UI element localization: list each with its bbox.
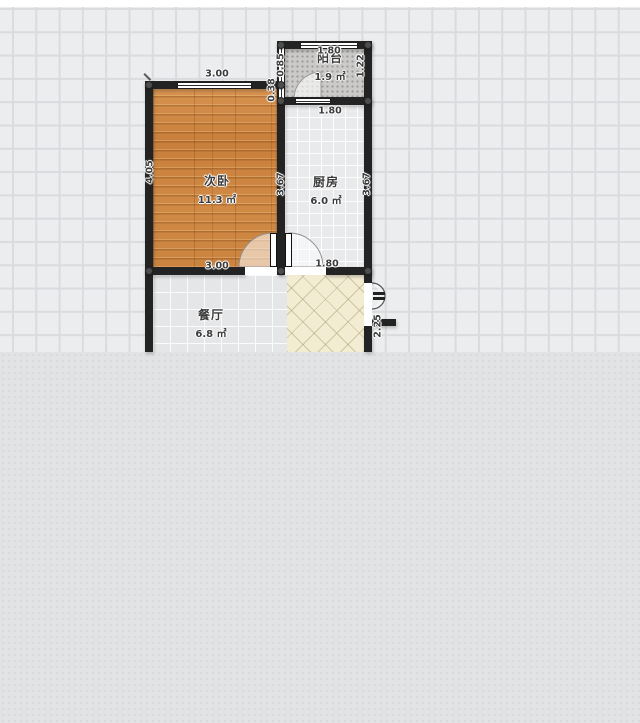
bedroom-door-leaf[interactable] bbox=[270, 233, 277, 267]
vertex-dot[interactable] bbox=[145, 81, 153, 89]
vertex-dot[interactable] bbox=[277, 81, 285, 89]
vertex-dot[interactable] bbox=[364, 97, 372, 105]
vertex-dot[interactable] bbox=[364, 267, 372, 275]
room-label-kitchen: 厨房 6.0 ㎡ bbox=[310, 173, 341, 207]
room-name: 厨房 bbox=[310, 173, 341, 190]
dim-balcony-right: 1.22 bbox=[356, 54, 367, 77]
room-label-bedroom: 次卧 11.3 ㎡ bbox=[198, 172, 236, 206]
room-name: 餐厅 bbox=[195, 306, 226, 323]
kitchen-door-leaf[interactable] bbox=[285, 233, 292, 267]
dim-bedroom-bottom: 3.00 bbox=[205, 261, 228, 272]
room-label-dining: 餐厅 6.8 ㎡ bbox=[195, 306, 226, 340]
dim-kitchen-top: 1.80 bbox=[318, 106, 341, 117]
vertex-dot[interactable] bbox=[277, 97, 285, 105]
room-area: 1.9 ㎡ bbox=[314, 68, 345, 83]
dim-entry-side: 2.25 bbox=[373, 314, 384, 337]
entry-doorway[interactable] bbox=[364, 283, 372, 326]
balcony-door-bar[interactable] bbox=[295, 98, 331, 104]
bedroom-doorway[interactable] bbox=[245, 267, 277, 275]
dim-balcony-left: 0.85 bbox=[276, 53, 287, 76]
wall-left[interactable] bbox=[145, 81, 153, 352]
room-area: 11.3 ㎡ bbox=[198, 191, 236, 206]
bottom-empty-panel bbox=[0, 352, 640, 723]
vertex-dot[interactable] bbox=[364, 41, 372, 49]
dim-bedroom-top: 3.00 bbox=[205, 69, 228, 80]
floorplan-stage: 阳台 1.9 ㎡ 次卧 11.3 ㎡ 厨房 6.0 ㎡ 餐厅 6.8 ㎡ 3.0… bbox=[0, 0, 640, 723]
dim-wall-segment: 0.38 bbox=[267, 78, 278, 101]
vertex-dot[interactable] bbox=[277, 41, 285, 49]
entry-hall-floor[interactable] bbox=[287, 275, 364, 352]
wall-bottom-left-segment[interactable] bbox=[145, 267, 245, 275]
dim-kitchen-right: 3.67 bbox=[362, 172, 373, 195]
dim-balcony-top: 1.80 bbox=[317, 46, 340, 57]
room-area: 6.0 ㎡ bbox=[310, 192, 341, 207]
room-area: 6.8 ㎡ bbox=[195, 325, 226, 340]
vertex-dot[interactable] bbox=[277, 267, 285, 275]
dim-kitchen-bottom: 1.80 bbox=[315, 259, 338, 270]
vertex-dot[interactable] bbox=[145, 267, 153, 275]
bedroom-window[interactable] bbox=[177, 82, 252, 89]
room-name: 次卧 bbox=[198, 172, 236, 189]
dim-bedroom-right: 3.67 bbox=[276, 172, 287, 195]
wall-right-lower[interactable] bbox=[364, 326, 372, 352]
dim-bedroom-left: 4.05 bbox=[145, 160, 156, 183]
